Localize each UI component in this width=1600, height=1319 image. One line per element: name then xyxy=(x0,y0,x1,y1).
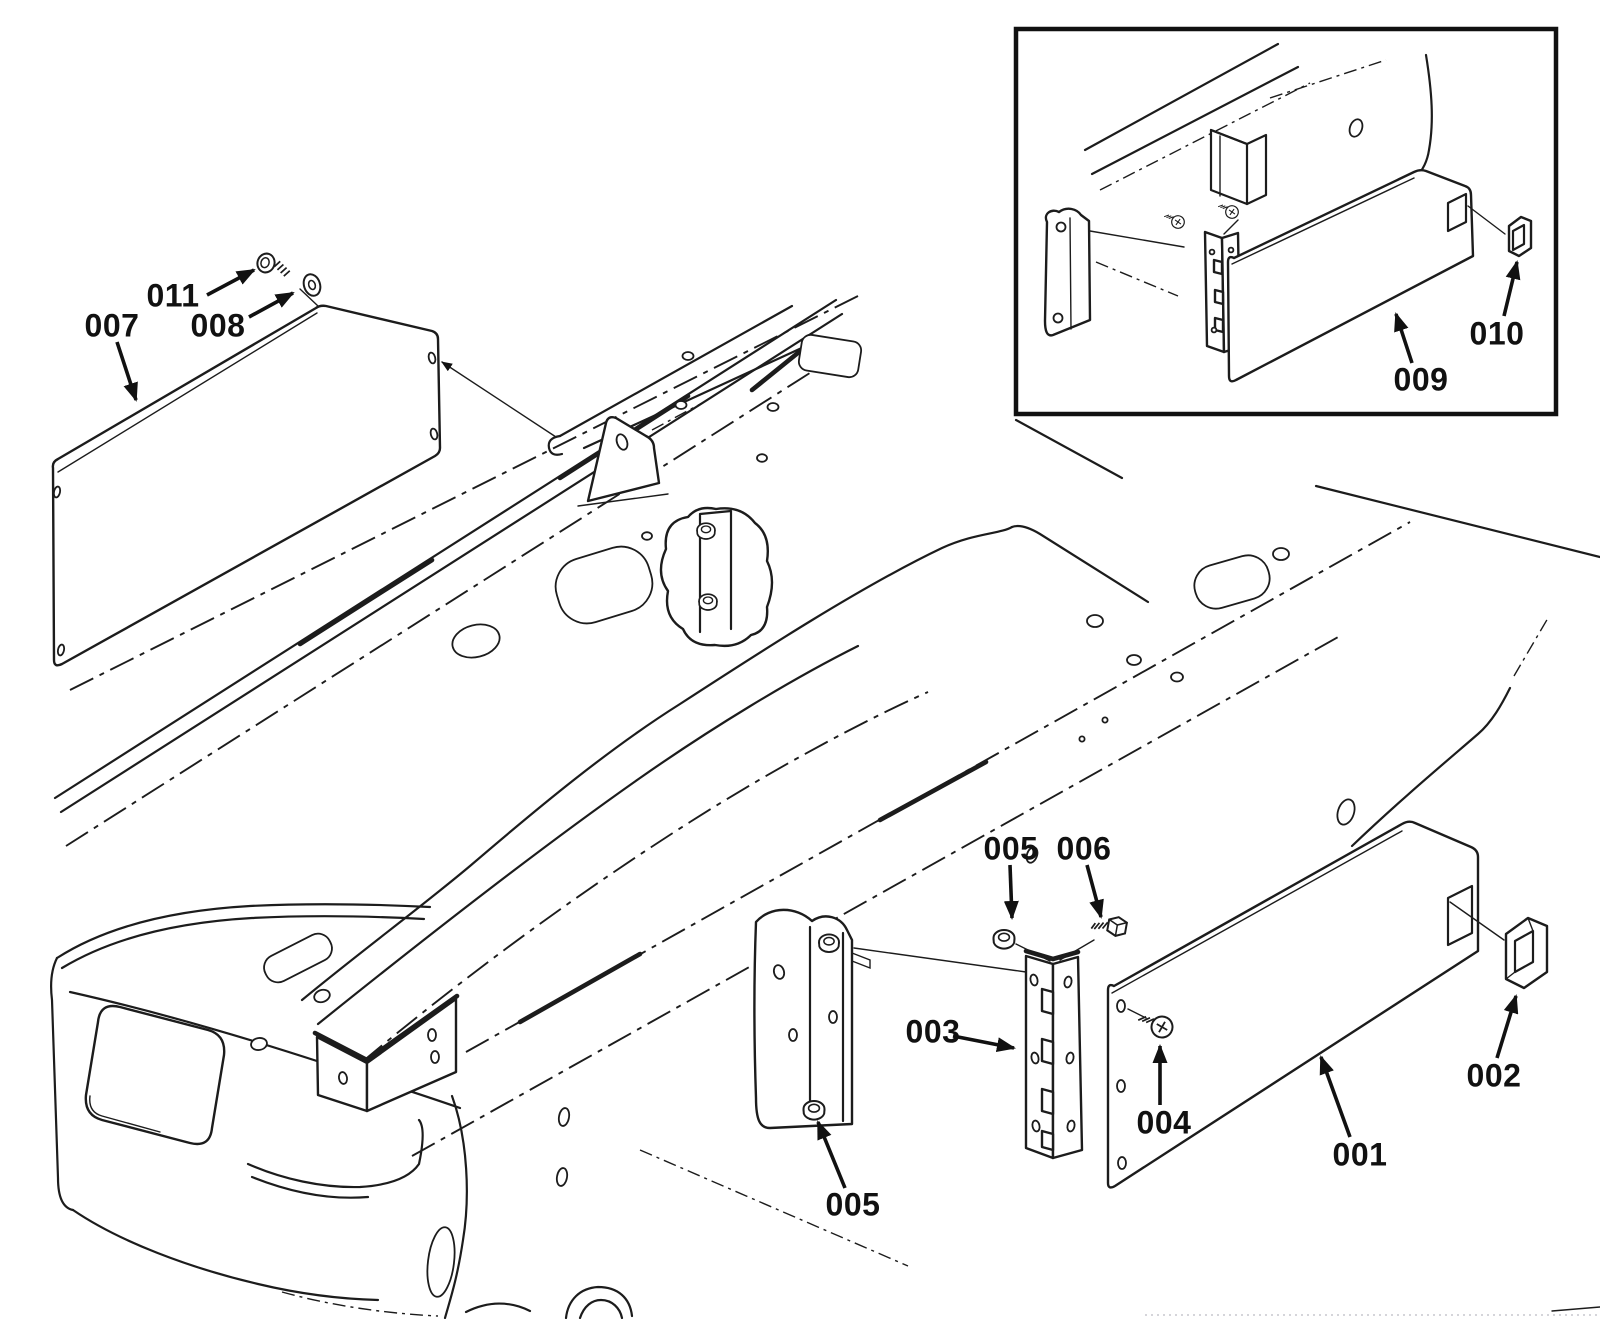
corner-line-fragment xyxy=(1552,1307,1600,1311)
part-label-008-2: 008 xyxy=(191,308,246,345)
fixed-nut-icon xyxy=(819,934,839,952)
leader-arrow-006-4 xyxy=(1087,865,1101,917)
nut-005-top-glyph xyxy=(994,930,1015,949)
leader-arrow-005-3 xyxy=(1010,865,1012,918)
latch-clip-002 xyxy=(1506,918,1547,988)
fixed-nut-icon xyxy=(697,523,715,539)
part-label-001-8: 001 xyxy=(1333,1137,1388,1174)
mounting-bracket xyxy=(755,910,871,1128)
leader-arrow-011-1 xyxy=(207,270,254,295)
part-label-006-4: 006 xyxy=(1057,831,1112,868)
leader-arrow-002-9 xyxy=(1497,996,1516,1058)
deck-bracket xyxy=(661,508,772,646)
inset-bracket xyxy=(1045,209,1090,336)
fixed-nut-icon xyxy=(699,594,717,610)
part-label-004-7: 004 xyxy=(1137,1105,1192,1142)
gusset-bracket xyxy=(578,417,668,506)
screw-011-glyph xyxy=(255,251,293,279)
leader-arrow-007-0 xyxy=(117,342,136,400)
parts-diagram-page: 007011008005006003005004001002009010 xyxy=(0,0,1600,1319)
corner-angle-bracket xyxy=(315,996,457,1111)
part-label-005-6: 005 xyxy=(826,1187,881,1224)
part-label-002-9: 002 xyxy=(1467,1058,1522,1095)
leader-arrow-005-6 xyxy=(818,1122,845,1188)
diagram-line-art xyxy=(0,0,1600,1319)
part-label-005-3: 005 xyxy=(984,831,1039,868)
leader-arrow-001-8 xyxy=(1321,1057,1350,1137)
inset-border xyxy=(1016,29,1556,414)
part-label-003-5: 003 xyxy=(906,1014,961,1051)
part-label-007-0: 007 xyxy=(85,308,140,345)
latch-clip-010 xyxy=(1509,217,1531,256)
washer-008-glyph xyxy=(301,272,323,298)
leader-arrow-003-5 xyxy=(953,1036,1014,1048)
part-label-010-11: 010 xyxy=(1470,316,1525,353)
nut-005-bottom-glyph xyxy=(804,1101,825,1120)
leader-arrow-008-2 xyxy=(249,293,293,317)
hinge-003 xyxy=(1026,951,1082,1158)
screw-006-glyph xyxy=(1091,913,1128,938)
part-label-009-10: 009 xyxy=(1394,362,1449,399)
inset-box xyxy=(1016,29,1556,414)
